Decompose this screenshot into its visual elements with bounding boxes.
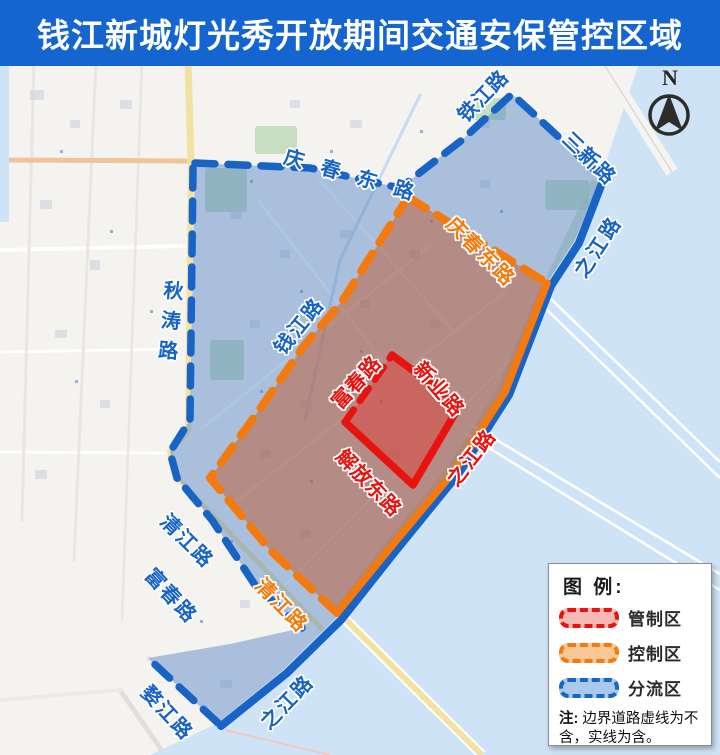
north-arrow: N <box>645 68 695 143</box>
legend-label-restricted-zone: 管制区 <box>628 605 682 630</box>
legend: 图 例: 管制区控制区分流区 注: 边界道路虚线为不含，实线为含。 <box>548 563 712 746</box>
legend-swatch-diversion-zone <box>559 678 619 698</box>
legend-note-text: 边界道路虚线为不含，实线为含。 <box>559 711 698 746</box>
legend-title: 图 例: <box>563 572 701 599</box>
traffic-control-map-poster: 钱江新城灯光秀开放期间交通安保管控区域 庆春东路铁江路三新路之江路庆春东路钱江路… <box>0 0 720 755</box>
legend-label-diversion-zone: 分流区 <box>628 675 682 700</box>
legend-swatch-restricted-zone <box>559 608 619 628</box>
title-bar: 钱江新城灯光秀开放期间交通安保管控区域 <box>0 0 720 66</box>
legend-note: 注: 边界道路虚线为不含，实线为含。 <box>559 710 701 748</box>
legend-label-control-zone: 控制区 <box>628 640 682 665</box>
legend-item-control-zone: 控制区 <box>559 640 701 665</box>
legend-swatch-control-zone <box>559 643 619 663</box>
legend-note-prefix: 注: <box>559 711 578 727</box>
north-label: N <box>645 68 695 88</box>
compass-icon <box>645 88 695 140</box>
river-west-sliver <box>0 62 9 222</box>
legend-item-restricted-zone: 管制区 <box>559 605 701 630</box>
legend-item-diversion-zone: 分流区 <box>559 675 701 700</box>
legend-rows: 管制区控制区分流区 <box>559 605 701 700</box>
page-title: 钱江新城灯光秀开放期间交通安保管控区域 <box>37 9 683 57</box>
